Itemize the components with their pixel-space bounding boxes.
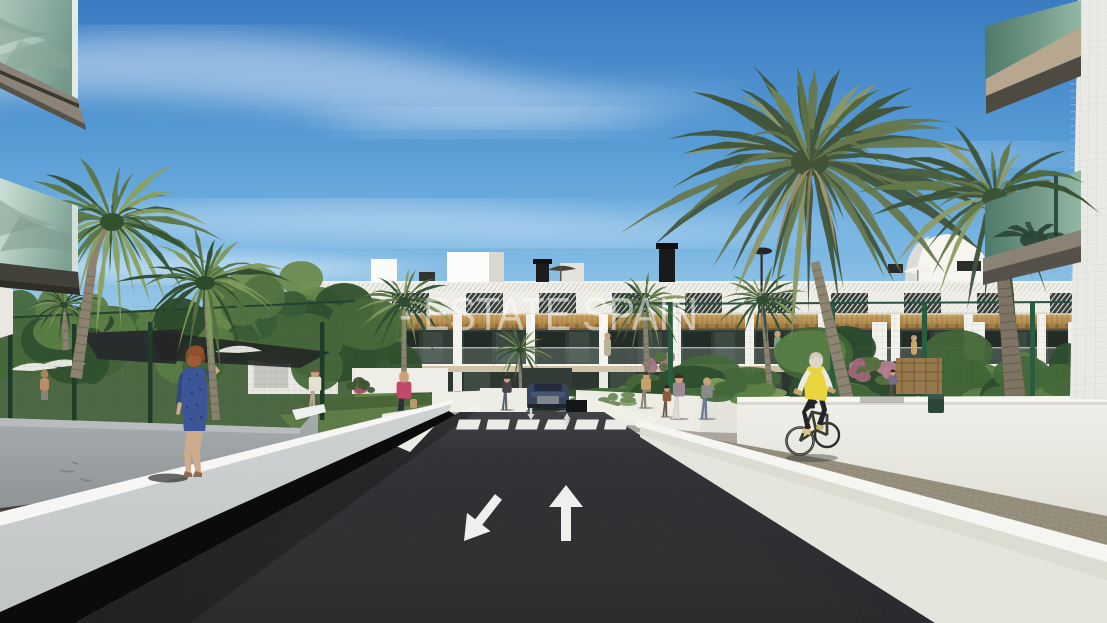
svg-text:- ESTATE SPAIN: - ESTATE SPAIN: [399, 288, 698, 340]
